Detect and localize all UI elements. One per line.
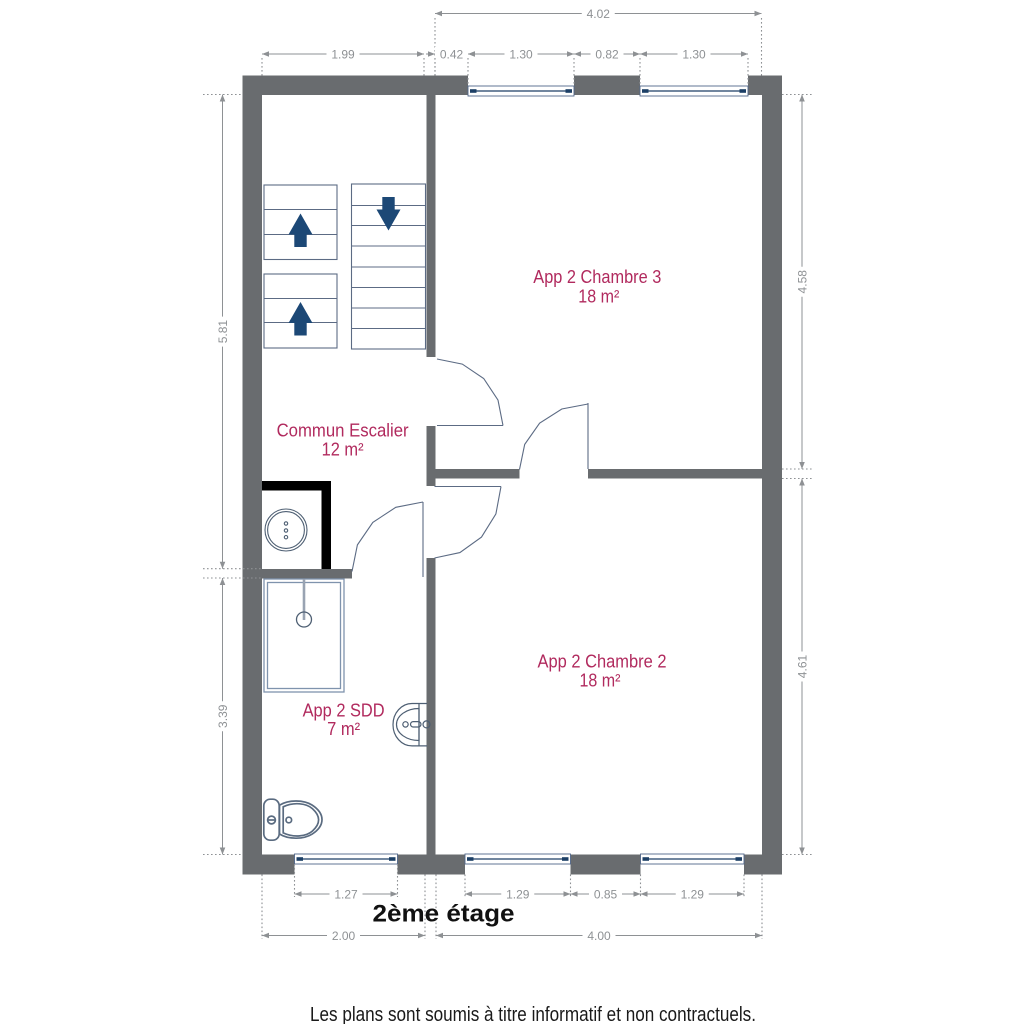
svg-text:1.99: 1.99 [331, 48, 355, 62]
svg-text:0.42: 0.42 [440, 48, 464, 62]
svg-text:5.81: 5.81 [216, 320, 230, 344]
svg-text:4.02: 4.02 [587, 7, 611, 21]
svg-text:1.29: 1.29 [506, 888, 530, 902]
svg-text:App 2 SDD: App 2 SDD [303, 701, 385, 721]
svg-text:Les plans sont soumis à titre: Les plans sont soumis à titre informatif… [310, 1004, 756, 1024]
svg-text:1.29: 1.29 [681, 888, 705, 902]
svg-text:3.39: 3.39 [216, 704, 230, 728]
svg-text:App 2 Chambre 2: App 2 Chambre 2 [538, 651, 667, 671]
svg-text:1.30: 1.30 [682, 48, 706, 62]
svg-text:2ème étage: 2ème étage [373, 901, 515, 928]
svg-text:0.85: 0.85 [594, 888, 618, 902]
svg-text:4.58: 4.58 [796, 270, 810, 294]
svg-text:1.27: 1.27 [334, 888, 358, 902]
svg-text:12 m²: 12 m² [322, 440, 364, 460]
svg-text:7 m²: 7 m² [327, 719, 360, 739]
svg-text:App 2 Chambre 3: App 2 Chambre 3 [533, 267, 661, 287]
svg-text:1.30: 1.30 [509, 48, 533, 62]
svg-text:4.61: 4.61 [796, 654, 810, 678]
svg-text:0.82: 0.82 [595, 48, 619, 62]
svg-text:18 m²: 18 m² [580, 671, 621, 691]
svg-text:4.00: 4.00 [587, 929, 611, 943]
svg-text:18 m²: 18 m² [578, 287, 619, 307]
svg-text:2.00: 2.00 [332, 929, 356, 943]
svg-text:Commun Escalier: Commun Escalier [277, 420, 409, 440]
